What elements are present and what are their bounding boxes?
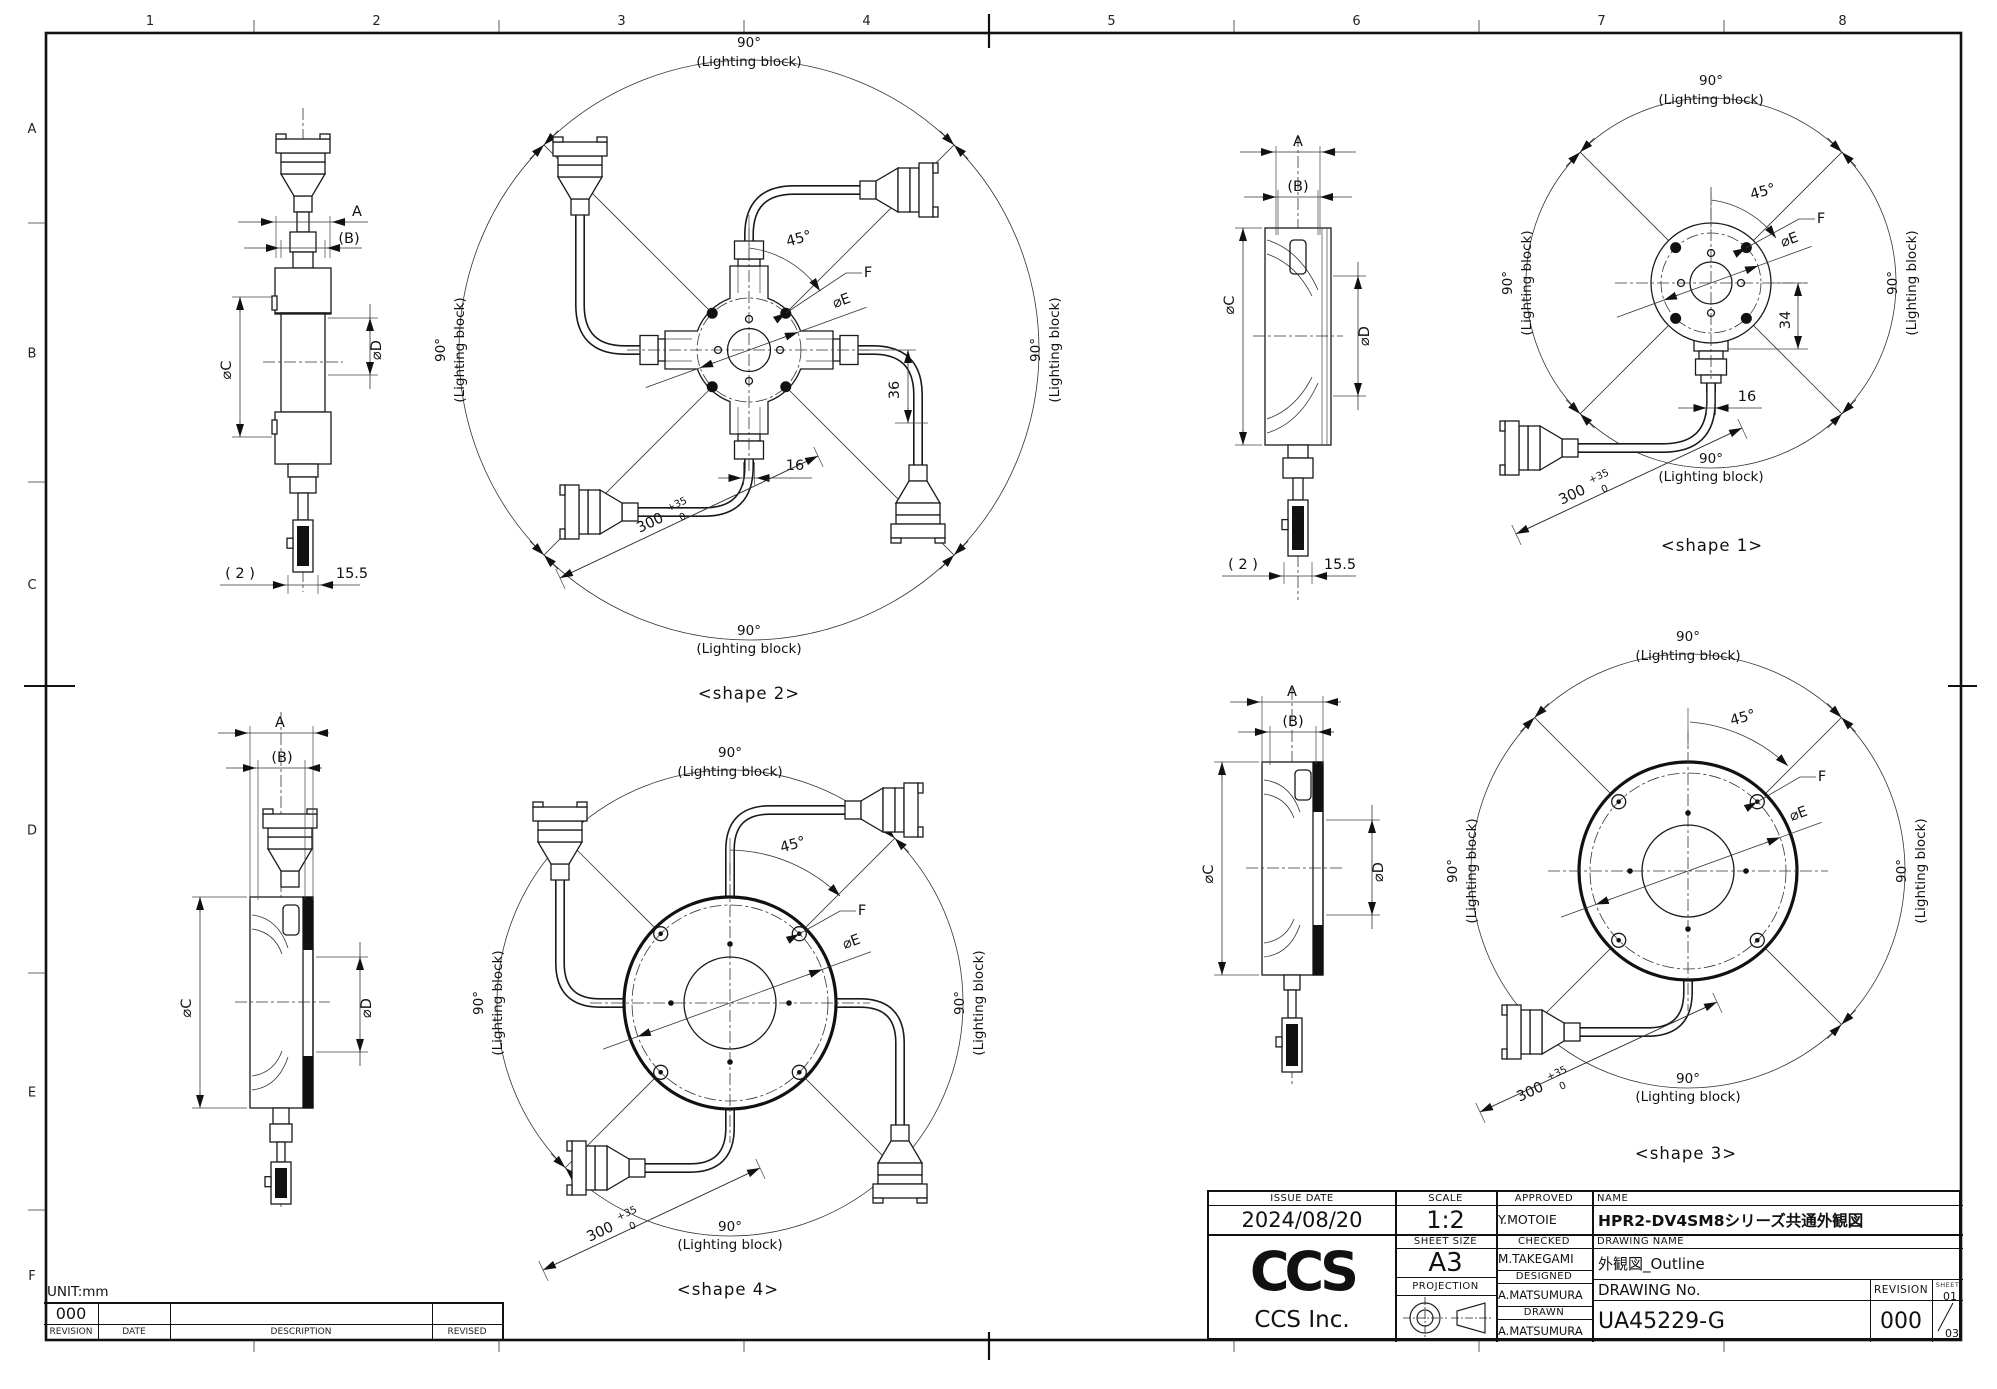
cable-connector	[873, 1125, 927, 1203]
pilot-hole	[727, 1059, 733, 1065]
grid-col-label: 4	[862, 14, 870, 29]
angle-90-right: 90°	[1028, 338, 1044, 362]
cable-length-label: 300	[584, 1219, 616, 1245]
cable	[580, 215, 641, 350]
dia-c-label: ⌀C	[219, 361, 235, 380]
dia-c-label: ⌀C	[179, 999, 195, 1018]
cable-connector	[553, 137, 607, 215]
cable-connector	[567, 1141, 645, 1195]
shape-1-side-view: A(B)⌀C⌀D( 2 )15.5	[1222, 134, 1373, 600]
drawing-name-label: DRAWING NAME	[1592, 1234, 1968, 1248]
dia-d-label: ⌀D	[1357, 326, 1373, 346]
drawn-label: DRAWN	[1496, 1306, 1592, 1319]
revision-current: 000	[44, 1302, 98, 1324]
angle-90-top: 90°	[737, 35, 761, 51]
lighting-block-right: (Lighting block)	[1047, 297, 1063, 402]
title-block: ISSUE DATE 2024/08/20 SCALE 1:2 APPROVED…	[1207, 1190, 1961, 1340]
cable-connector	[533, 802, 587, 880]
dim-15-5-label: 15.5	[1324, 557, 1356, 573]
hole-f-label: F	[858, 903, 866, 919]
hole-f-label: F	[1818, 769, 1826, 785]
angle-90-right: 90°	[952, 991, 968, 1015]
shape-4-side-view: A(B)⌀C⌀D	[179, 712, 375, 1210]
cable-connector	[1500, 421, 1578, 475]
mounting-hole	[1670, 242, 1681, 253]
angle-90-left: 90°	[471, 991, 487, 1015]
shape-caption: <shape 3>	[1635, 1144, 1737, 1163]
cable-length-label: 300	[1556, 482, 1588, 508]
pilot-hole	[786, 1000, 792, 1006]
cable-connector	[560, 485, 638, 539]
cable-connector	[891, 465, 945, 543]
hole-f-label: F	[1817, 211, 1825, 227]
issue-date-label: ISSUE DATE	[1209, 1192, 1395, 1205]
grid-row-label: F	[28, 1269, 35, 1284]
angle-90-top: 90°	[718, 745, 742, 761]
cable-tol-minus: 0	[1558, 1080, 1568, 1093]
dia-e-label: ⌀E	[1778, 230, 1800, 251]
lighting-block-right: (Lighting block)	[1904, 230, 1920, 335]
dia-e-label: ⌀E	[840, 932, 862, 953]
third-angle-projection-icon	[1395, 1295, 1496, 1342]
designed-value: A.MATSUMURA	[1496, 1283, 1594, 1306]
shape-caption: <shape 4>	[677, 1280, 779, 1299]
shape-caption: <shape 2>	[698, 684, 800, 703]
mounting-hole	[1741, 313, 1752, 324]
lighting-block-bottom: (Lighting block)	[677, 1237, 782, 1253]
dim-b-label: (B)	[1287, 179, 1308, 195]
angle-90-bottom: 90°	[1699, 451, 1723, 467]
mounting-hole	[707, 381, 718, 392]
pilot-hole	[1685, 926, 1691, 932]
angle-45-label: 45°	[1748, 181, 1777, 203]
shape-1-front-view: 45°F⌀E3416300+35090°(Lighting block)90°(…	[1500, 73, 1920, 555]
dia-c-label: ⌀C	[1201, 865, 1217, 884]
grid-col-label: 8	[1838, 14, 1846, 29]
company-logo: CCS	[1209, 1240, 1395, 1304]
name-value: HPR2-DV4SM8シリーズ共通外観図	[1592, 1205, 1969, 1234]
dim-a-label: A	[352, 204, 362, 220]
dim-b-label: (B)	[338, 231, 359, 247]
cable	[1578, 380, 1711, 448]
dim-16-label: 16	[1738, 389, 1756, 405]
drawing-canvas: 12345678ABCDEF 45°F⌀E3616300+35090°(Ligh…	[0, 0, 1997, 1389]
grid-col-label: 2	[372, 14, 380, 29]
angle-90-bottom: 90°	[1676, 1071, 1700, 1087]
grid-row-label: B	[28, 347, 37, 362]
checked-label: CHECKED	[1496, 1234, 1592, 1248]
description-col-label: DESCRIPTION	[170, 1324, 432, 1340]
dia-d-label: ⌀D	[359, 998, 375, 1018]
dim-34-label: 34	[1778, 311, 1794, 329]
drawing-name-value: 外観図_Outline	[1592, 1248, 1969, 1279]
grid-col-label: 6	[1352, 14, 1360, 29]
pilot-hole	[727, 941, 733, 947]
shape-caption: <shape 1>	[1661, 536, 1763, 555]
dim-b-label: (B)	[271, 750, 292, 766]
dia-d-label: ⌀D	[369, 340, 385, 360]
dim-15-5-label: 15.5	[336, 566, 368, 582]
revision-strip: UNIT:mm 000 REVISION DATE DESCRIPTION RE…	[44, 1283, 564, 1340]
drawing-no-label: DRAWING No.	[1592, 1279, 1876, 1300]
angle-45-label: 45°	[778, 834, 807, 856]
lighting-block-left: (Lighting block)	[1464, 818, 1480, 923]
shape-4-front-view: 45°F⌀E300+35090°(Lighting block)90°(Ligh…	[471, 745, 987, 1299]
angle-45-label: 45°	[1728, 707, 1757, 729]
dim-a-label: A	[1287, 684, 1297, 700]
angle-90-left: 90°	[1500, 271, 1516, 295]
sheet-current: 01	[1943, 1290, 1957, 1303]
dim-2-label: ( 2 )	[225, 566, 255, 582]
cable-tol-plus: +35	[1587, 467, 1611, 486]
designed-label: DESIGNED	[1496, 1270, 1592, 1283]
pilot-hole	[1685, 810, 1691, 816]
revision-value: 000	[1870, 1300, 1932, 1342]
grid-col-label: 3	[617, 14, 625, 29]
lighting-block-top: (Lighting block)	[677, 764, 782, 780]
grid-row-label: D	[27, 824, 37, 839]
revised-col-label: REVISED	[432, 1324, 502, 1340]
unit-label: UNIT:mm	[47, 1284, 109, 1300]
pilot-hole	[1743, 868, 1749, 874]
hole-f-label: F	[864, 265, 872, 281]
issue-date-value: 2024/08/20	[1209, 1205, 1395, 1234]
cable-connector	[860, 163, 938, 217]
cable-connector	[263, 809, 317, 887]
dia-e-label: ⌀E	[1787, 804, 1809, 825]
angle-45-label: 45°	[784, 228, 813, 250]
lighting-block-top: (Lighting block)	[1658, 92, 1763, 108]
angle-90-top: 90°	[1699, 73, 1723, 89]
lighting-block-left: (Lighting block)	[490, 950, 506, 1055]
scale-label: SCALE	[1395, 1192, 1496, 1205]
angle-90-left: 90°	[1445, 859, 1461, 883]
lighting-block-bottom: (Lighting block)	[696, 641, 801, 657]
drawing-views: 45°F⌀E3616300+35090°(Lighting block)90°(…	[179, 35, 1929, 1299]
projection-label: PROJECTION	[1395, 1277, 1496, 1295]
approved-label: APPROVED	[1496, 1192, 1592, 1205]
cable-connector	[1502, 1005, 1580, 1059]
lighting-block-right: (Lighting block)	[1913, 818, 1929, 923]
cable-connector	[276, 134, 330, 212]
revision-col-label: REVISION	[44, 1324, 98, 1340]
grid-row-label: A	[28, 122, 37, 137]
grid-col-label: 7	[1597, 14, 1605, 29]
cable-tol-minus: 0	[628, 1220, 638, 1233]
dim-b-label: (B)	[1282, 714, 1303, 730]
mounting-hole	[780, 381, 791, 392]
approved-value: Y.MOTOIE	[1496, 1205, 1594, 1234]
sheet-number: 01 03	[1932, 1289, 1963, 1342]
dia-c-label: ⌀C	[1222, 296, 1238, 315]
checked-value: M.TAKEGAMI	[1496, 1248, 1594, 1270]
angle-90-right: 90°	[1885, 271, 1901, 295]
scale-value: 1:2	[1395, 1205, 1496, 1234]
shape-3-side-view: A(B)⌀C⌀D	[1201, 684, 1387, 1085]
date-col-label: DATE	[98, 1324, 170, 1340]
cable-tol-plus: +35	[1545, 1064, 1569, 1083]
revision-label: REVISION	[1870, 1279, 1932, 1300]
lighting-block-bottom: (Lighting block)	[1658, 469, 1763, 485]
grid-row-label: E	[28, 1086, 36, 1101]
dim-16-label: 16	[786, 458, 804, 474]
lighting-block-left: (Lighting block)	[1519, 230, 1535, 335]
dim-a-label: A	[275, 715, 285, 731]
lighting-block-top: (Lighting block)	[1635, 648, 1740, 664]
mounting-hole	[780, 308, 791, 319]
ccs-logo-text: CCS	[1250, 1245, 1354, 1299]
shape-3-front-view: 45°F⌀E300+35090°(Lighting block)90°(Ligh…	[1445, 629, 1929, 1163]
angle-90-bottom: 90°	[737, 623, 761, 639]
company-name: CCS Inc.	[1209, 1302, 1395, 1338]
pilot-hole	[668, 1000, 674, 1006]
shape-2-front-view: 45°F⌀E3616300+35090°(Lighting block)90°(…	[433, 35, 1063, 703]
cable-connector	[845, 783, 923, 837]
dia-d-label: ⌀D	[1371, 862, 1387, 882]
lighting-block-left: (Lighting block)	[452, 297, 468, 402]
mounting-hole	[707, 308, 718, 319]
pilot-hole	[1627, 868, 1633, 874]
sheet-total: 03	[1945, 1327, 1959, 1340]
angle-90-left: 90°	[433, 338, 449, 362]
cable	[560, 880, 624, 1003]
dim-2-label: ( 2 )	[1228, 557, 1258, 573]
grid-row-label: C	[27, 578, 36, 593]
drawn-value: A.MATSUMURA	[1496, 1319, 1594, 1342]
dim-36-label: 36	[887, 381, 903, 399]
sheet-size-label: SHEET SIZE	[1395, 1234, 1496, 1248]
lighting-block-right: (Lighting block)	[971, 950, 987, 1055]
shape-2-side-view: A(B)⌀C⌀D( 2 )15.5	[219, 108, 385, 594]
dia-e-label: ⌀E	[830, 291, 852, 312]
grid-col-label: 1	[146, 14, 154, 29]
sheet-size-value: A3	[1395, 1248, 1496, 1277]
angle-90-top: 90°	[1676, 629, 1700, 645]
lighting-block-top: (Lighting block)	[696, 54, 801, 70]
cable	[836, 1003, 900, 1125]
drawing-sheet: 12345678ABCDEF 45°F⌀E3616300+35090°(Ligh…	[0, 0, 1997, 1389]
drawing-no-value: UA45229-G	[1592, 1300, 1876, 1342]
angle-90-right: 90°	[1894, 859, 1910, 883]
dim-a-label: A	[1293, 134, 1303, 150]
angle-90-bottom: 90°	[718, 1219, 742, 1235]
lighting-block-bottom: (Lighting block)	[1635, 1089, 1740, 1105]
grid-col-label: 5	[1107, 14, 1115, 29]
mounting-hole	[1670, 313, 1681, 324]
name-label: NAME	[1592, 1192, 1968, 1205]
